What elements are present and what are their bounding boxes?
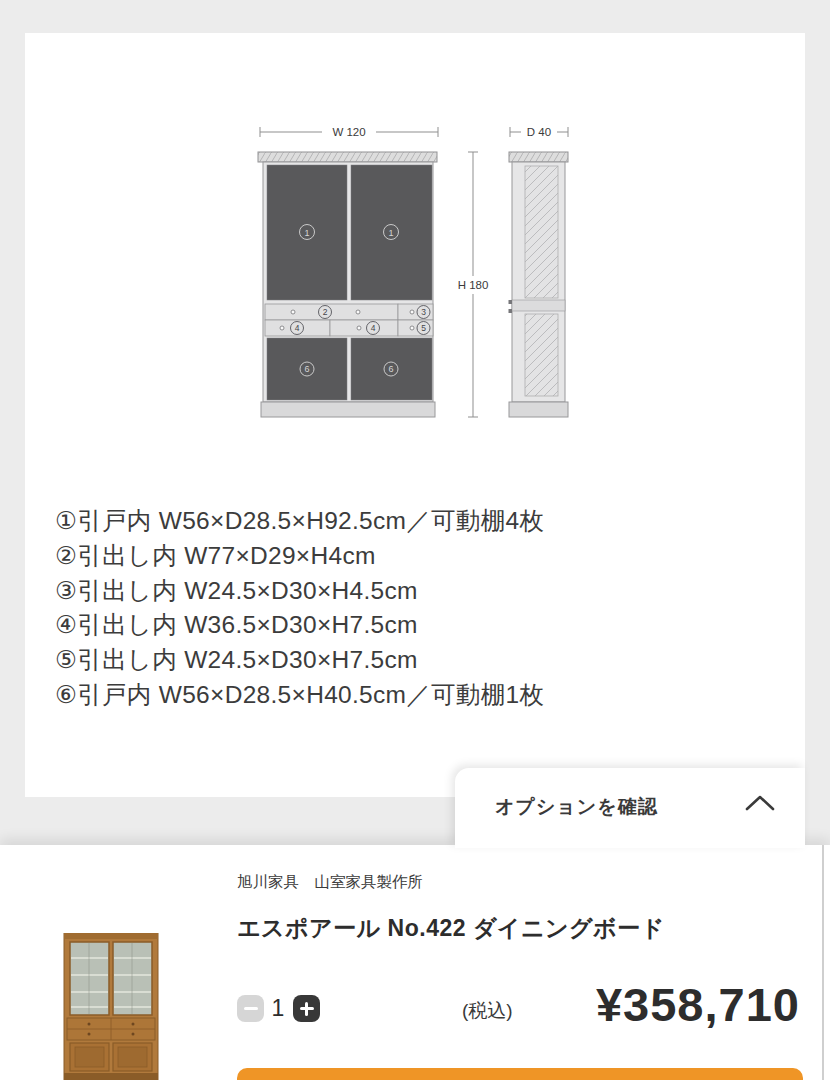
svg-text:1: 1 [304,228,309,238]
quantity-decrease-button[interactable] [237,995,264,1022]
svg-text:4: 4 [295,323,300,333]
price-amount: ¥358,710 [596,977,800,1032]
svg-text:4: 4 [371,323,376,333]
spec-list: ①引戸内 W56×D28.5×H92.5cm／可動棚4枚 ②引出し内 W77×D… [55,504,544,713]
dimension-diagram: W 120 D 40 1 1 [25,33,805,493]
tax-included-label: (税込) [462,998,513,1024]
spec-line-6: ⑥引戸内 W56×D28.5×H40.5cm／可動棚1枚 [55,678,544,713]
primary-action-button[interactable] [237,1068,803,1080]
chevron-up-icon[interactable] [745,795,775,811]
svg-text:3: 3 [421,307,426,317]
dim-width-label: W 120 [332,126,365,138]
svg-text:2: 2 [323,307,328,317]
options-panel[interactable]: オプションを確認 [455,768,805,848]
quantity-increase-button[interactable] [293,995,320,1022]
purchase-bar: 旭川家具 山室家具製作所 エスポアール No.422 ダイニングボード 1 (税… [0,845,830,1080]
spec-line-5: ⑤引出し内 W24.5×D30×H7.5cm [55,643,544,678]
spec-line-1: ①引戸内 W56×D28.5×H92.5cm／可動棚4枚 [55,504,544,539]
quantity-value: 1 [264,995,292,1022]
spec-line-2: ②引出し内 W77×D29×H4cm [55,539,544,574]
product-thumbnail[interactable] [62,933,160,1080]
cabinet-front-view: 1 1 2 3 [258,152,437,417]
dim-height-label: H 180 [458,279,489,291]
cabinet-side-view [509,152,569,417]
product-detail-card: W 120 D 40 1 1 [25,33,805,797]
spec-line-3: ③引出し内 W24.5×D30×H4.5cm [55,574,544,609]
dim-depth-label: D 40 [527,126,551,138]
product-title: エスポアール No.422 ダイニングボード [237,913,665,944]
product-page: { "diagram": { "dim_width_label": "W 120… [0,0,830,1080]
svg-text:6: 6 [388,364,393,374]
spec-line-4: ④引出し内 W36.5×D30×H7.5cm [55,608,544,643]
svg-text:1: 1 [388,228,393,238]
options-panel-label: オプションを確認 [495,794,658,820]
svg-text:5: 5 [421,323,426,333]
scrollbar[interactable] [822,845,824,1080]
minus-icon [244,1007,258,1011]
svg-text:6: 6 [304,364,309,374]
brand-name: 旭川家具 山室家具製作所 [237,872,423,893]
